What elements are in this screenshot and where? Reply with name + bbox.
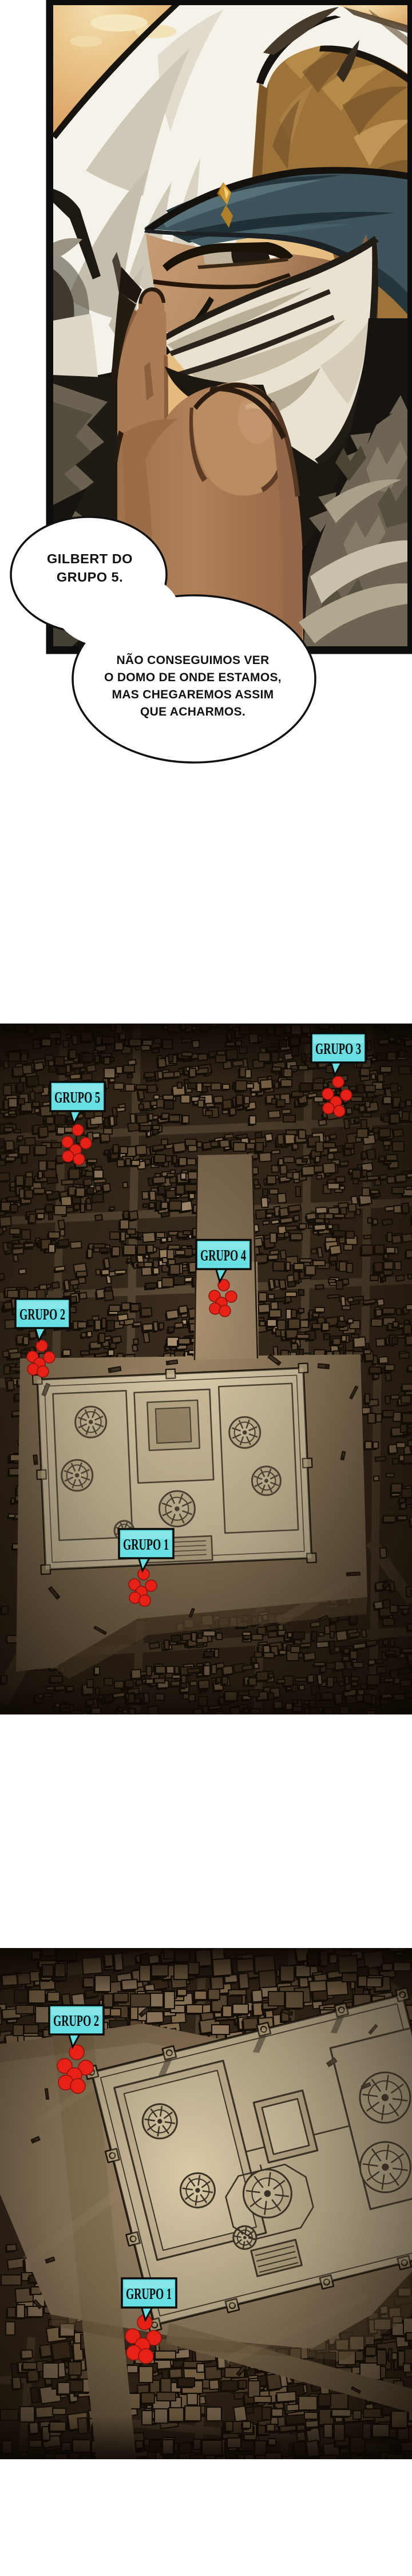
svg-text:GRUPO 4: GRUPO 4 (200, 1247, 246, 1264)
svg-text:GRUPO 1: GRUPO 1 (123, 1536, 169, 1553)
svg-text:GILBERT DO: GILBERT DO (47, 551, 133, 566)
svg-text:GRUPO 2: GRUPO 2 (19, 1306, 65, 1323)
svg-text:GRUPO 5: GRUPO 5 (54, 1089, 100, 1106)
svg-text:NÃO CONSEGUIMOS VER: NÃO CONSEGUIMOS VER (116, 654, 269, 667)
svg-text:GRUPO 5.: GRUPO 5. (57, 570, 123, 584)
svg-text:GRUPO 3: GRUPO 3 (315, 1040, 361, 1057)
svg-text:QUE ACHARMOS.: QUE ACHARMOS. (140, 705, 245, 718)
svg-text:O DOMO DE ONDE ESTAMOS,: O DOMO DE ONDE ESTAMOS, (104, 671, 282, 684)
svg-text:MAS CHEGAREMOS ASSIM: MAS CHEGAREMOS ASSIM (112, 688, 274, 701)
svg-text:GRUPO 2: GRUPO 2 (53, 2012, 99, 2029)
svg-text:GRUPO 1: GRUPO 1 (126, 2285, 172, 2302)
